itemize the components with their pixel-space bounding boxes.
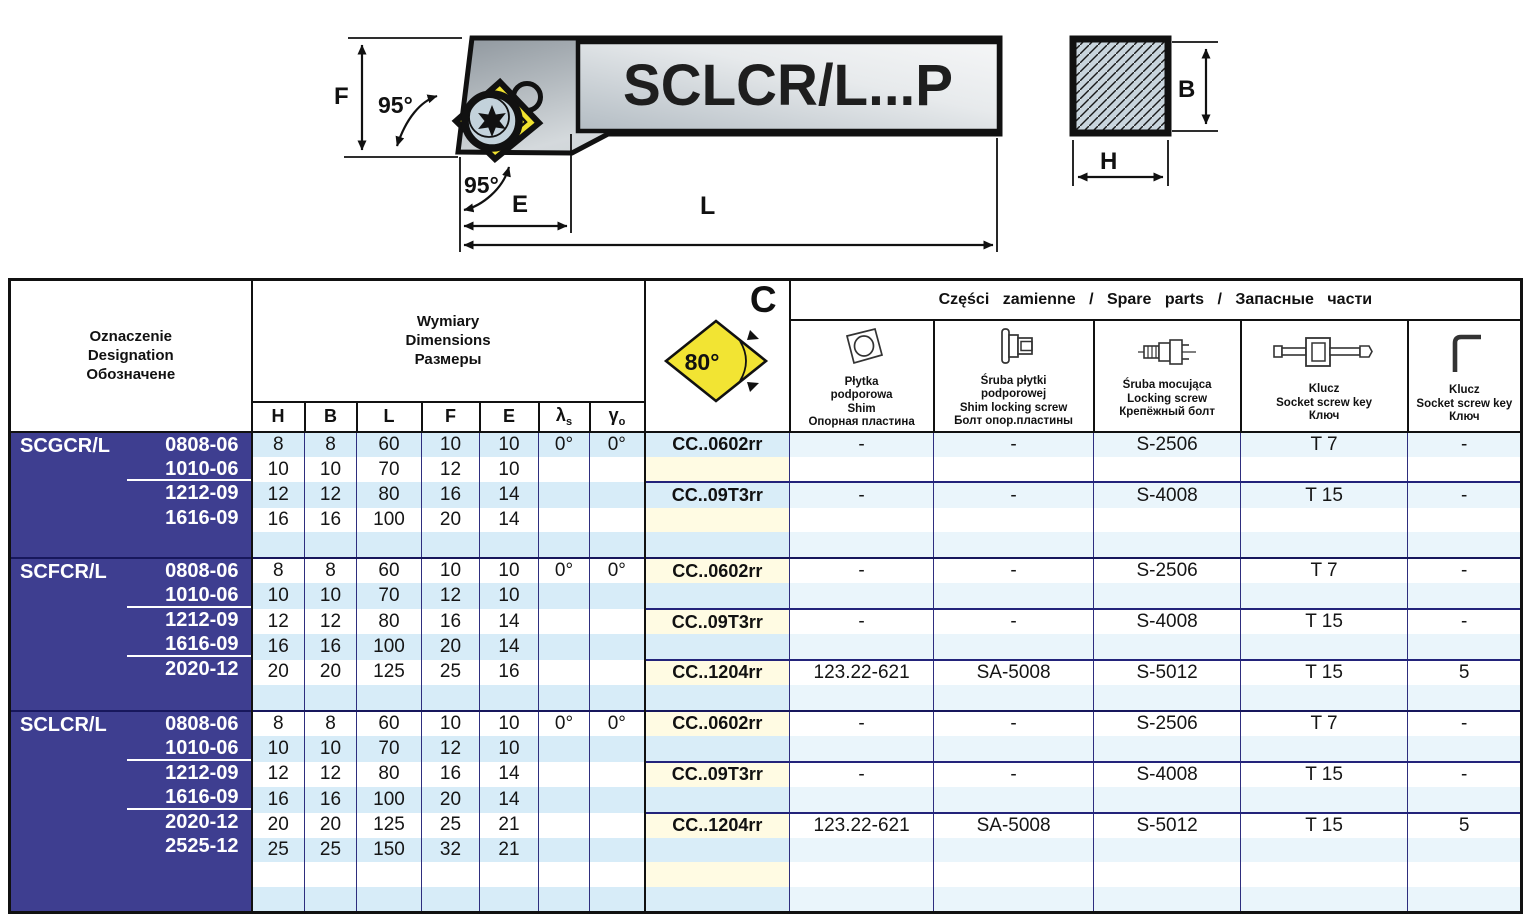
dim-cell: 20 — [252, 660, 305, 685]
spare-part-cell: - — [790, 609, 934, 634]
dim-cell: 16 — [305, 787, 357, 812]
insert-cell — [645, 685, 790, 710]
spare-part-cell: - — [1408, 558, 1522, 583]
spare-column-label-line: Śruba mocująca — [1095, 379, 1240, 393]
dim-cell: 60 — [357, 711, 422, 736]
dim-cell: 25 — [252, 838, 305, 862]
spare-part-cell — [934, 634, 1094, 659]
tool-size: 1616-09 — [127, 506, 251, 530]
tool-size: 1010-06 — [127, 457, 251, 481]
dim-cell: 10 — [305, 457, 357, 482]
dim-cell: 8 — [252, 711, 305, 736]
spare-part-cell — [934, 532, 1094, 557]
dim-cell: 12 — [305, 482, 357, 507]
angle-cell — [539, 583, 590, 608]
spare-part-cell: T 7 — [1241, 711, 1408, 736]
dim-label-E: E — [512, 191, 528, 218]
insert-cell — [645, 457, 790, 482]
dim-cell: 70 — [357, 457, 422, 482]
dim-cell: 14 — [480, 787, 539, 812]
dim-letter: γ — [609, 405, 619, 425]
spare-column-label-line: Locking screw — [1095, 393, 1240, 407]
spare-part-cell — [1408, 634, 1522, 659]
spare-part-cell: - — [1408, 482, 1522, 507]
dim-cell — [305, 532, 357, 557]
dim-cell: 10 — [305, 736, 357, 761]
spare-column-label-line: Ключ — [1409, 411, 1521, 425]
spare-column-label-line: Klucz — [1409, 384, 1521, 398]
spare-part-cell: SA-5008 — [934, 660, 1094, 685]
designation-header-line: Обозначене — [11, 365, 251, 384]
dim-cell: 10 — [422, 711, 480, 736]
spare-column-label-line: Śruba płytki — [935, 375, 1093, 389]
spare-part-cell: T 15 — [1241, 660, 1408, 685]
spare-part-cell: 123.22-621 — [790, 813, 934, 838]
spare-column-label-line: Socket screw key — [1409, 398, 1521, 412]
spare-column-header: Śruba mocującaLocking screwКрепёжный бол… — [1094, 320, 1241, 432]
tool-size: 0808-06 — [127, 433, 251, 457]
angle-cell — [539, 862, 590, 886]
tool-series-name: SCFCR/L — [11, 559, 107, 710]
spare-part-cell — [1094, 685, 1241, 710]
dim-cell: 16 — [305, 508, 357, 532]
designation-cell: SCLCR/L0808-061010-061212-091616-092020-… — [10, 711, 252, 913]
spare-part-cell: T 7 — [1241, 432, 1408, 457]
dim-cell: 16 — [422, 762, 480, 787]
angle-cell: 0° — [539, 558, 590, 583]
spare-part-cell — [790, 508, 934, 532]
dim-cell: 16 — [252, 508, 305, 532]
dim-label-F: F — [334, 83, 349, 110]
angle-cell — [590, 634, 645, 659]
angle-cell — [539, 660, 590, 685]
div-element: SCFCR/L0808-061010-061212-091616-092020-… — [11, 559, 251, 710]
spare-part-cell — [934, 787, 1094, 812]
spare-part-cell — [1094, 583, 1241, 608]
tool-size: 0808-06 — [127, 712, 251, 736]
angle-cell — [590, 762, 645, 787]
spare-part-cell — [1094, 838, 1241, 862]
spare-column-label-line: Крепёжный болт — [1095, 406, 1240, 420]
spare-column-header: KluczSocket screw keyКлюч — [1241, 320, 1408, 432]
insert-cell: CC..0602rr — [645, 711, 790, 736]
size-list: 0808-061010-061212-091616-09 — [127, 433, 251, 557]
dim-label-B: B — [1178, 76, 1195, 103]
dim-cell — [422, 532, 480, 557]
spare-part-cell — [1408, 508, 1522, 532]
dim-cell: 10 — [252, 583, 305, 608]
tool-size: 1212-09 — [127, 481, 251, 505]
spare-part-cell: - — [934, 762, 1094, 787]
insert-cell: CC..09T3rr — [645, 609, 790, 634]
spare-part-cell: T 15 — [1241, 482, 1408, 507]
rect-element — [1018, 338, 1032, 354]
spare-part-cell — [1094, 532, 1241, 557]
rect-element — [1282, 348, 1306, 355]
rect-element — [1002, 329, 1009, 363]
insert-cell — [645, 532, 790, 557]
angle-cell — [590, 457, 645, 482]
dim-cell — [252, 532, 305, 557]
angle-cell — [590, 609, 645, 634]
spare-part-cell: S-4008 — [1094, 482, 1241, 507]
dim-column-letter-F: F — [422, 402, 480, 432]
spare-part-cell — [1241, 634, 1408, 659]
spare-part-cell — [1094, 862, 1241, 886]
dim-cell: 10 — [422, 558, 480, 583]
angle-cell — [539, 787, 590, 812]
dim-cell: 16 — [480, 660, 539, 685]
spare-part-cell — [1094, 634, 1241, 659]
dim-cell: 12 — [422, 457, 480, 482]
spare-part-cell — [934, 862, 1094, 886]
spare-column-label-line: Shim locking screw — [935, 402, 1093, 416]
holder-designation-label: SCLCR/L...P — [623, 53, 953, 118]
angle-cell — [590, 583, 645, 608]
spare-part-cell — [1408, 787, 1522, 812]
dim-cell: 12 — [252, 482, 305, 507]
insert-cell: CC..09T3rr — [645, 762, 790, 787]
dim-cell: 70 — [357, 736, 422, 761]
polygon-element — [1360, 346, 1372, 357]
dim-letter: H — [272, 406, 285, 426]
insert-cell: CC..0602rr — [645, 558, 790, 583]
socket-screw-key-icon — [1242, 329, 1407, 380]
spare-part-cell — [1241, 787, 1408, 812]
spare-column-label-line: podporowej — [935, 388, 1093, 402]
tool-size — [127, 681, 251, 705]
angle-cell — [539, 813, 590, 838]
insert-cell — [645, 862, 790, 886]
angle-cell: 0° — [590, 558, 645, 583]
svg-element — [839, 324, 885, 368]
dim-letter-subscript: o — [619, 416, 626, 428]
dim-cell: 100 — [357, 787, 422, 812]
tool-size: 1616-09 — [127, 632, 251, 656]
spare-part-cell: - — [790, 762, 934, 787]
spare-part-cell: - — [790, 482, 934, 507]
insert-column-header: C80° — [645, 280, 790, 432]
tool-size: 1616-09 — [127, 785, 251, 809]
insert-angle-label: 80° — [684, 349, 719, 375]
insert-cell: CC..1204rr — [645, 813, 790, 838]
dim-cell: 14 — [480, 634, 539, 659]
dim-cell: 25 — [305, 838, 357, 862]
dim-cell: 8 — [305, 558, 357, 583]
spare-part-cell: - — [790, 432, 934, 457]
spare-part-cell — [790, 736, 934, 761]
dim-cell: 21 — [480, 838, 539, 862]
spare-part-cell — [1241, 862, 1408, 886]
dim-cell: 16 — [422, 609, 480, 634]
spare-part-cell — [1408, 862, 1522, 886]
dim-cell: 10 — [480, 711, 539, 736]
spare-part-cell — [790, 634, 934, 659]
dim-cell: 12 — [252, 609, 305, 634]
spare-part-cell — [790, 685, 934, 710]
spare-part-cell — [1408, 583, 1522, 608]
spare-part-cell: - — [790, 711, 934, 736]
tool-size: 1010-06 — [127, 736, 251, 760]
tool-size: 1212-09 — [127, 761, 251, 785]
spare-column-header: PłytkapodporowaShimОпорная пластина — [790, 320, 934, 432]
dim-column-letter-B: B — [305, 402, 357, 432]
dimensions-header-line: Wymiary — [253, 312, 644, 331]
angle-label-95-main: 95° — [378, 92, 413, 118]
dim-letter: F — [445, 406, 456, 426]
dim-cell: 16 — [422, 482, 480, 507]
spare-column-label-line: Ключ — [1242, 410, 1407, 424]
dim-cell: 70 — [357, 583, 422, 608]
insert-cell: CC..0602rr — [645, 432, 790, 457]
spare-part-cell: S-2506 — [1094, 432, 1241, 457]
spare-part-cell: - — [1408, 609, 1522, 634]
dim-cell: 10 — [480, 457, 539, 482]
svg-element — [1272, 329, 1376, 375]
dim-cell: 60 — [357, 558, 422, 583]
spare-part-cell: - — [790, 558, 934, 583]
spare-part-cell — [934, 583, 1094, 608]
insert-cell — [645, 787, 790, 812]
insert-cell — [645, 838, 790, 862]
tool-size: 2525-12 — [127, 834, 251, 858]
dim-cell: 8 — [252, 432, 305, 457]
dim-cell: 14 — [480, 609, 539, 634]
designation-cell: SCFCR/L0808-061010-061212-091616-092020-… — [10, 558, 252, 711]
dim-cell: 10 — [422, 432, 480, 457]
spare-part-cell — [790, 457, 934, 482]
angle-cell — [539, 508, 590, 532]
dim-cell: 12 — [422, 736, 480, 761]
dim-cell: 8 — [252, 558, 305, 583]
path-element — [1455, 337, 1481, 372]
dimensions-header: WymiaryDimensionsРазмеры — [252, 280, 645, 402]
dim-cell: 10 — [480, 432, 539, 457]
table-row: SCLCR/L0808-061010-061212-091616-092020-… — [10, 711, 1522, 736]
spare-part-cell — [934, 508, 1094, 532]
spare-part-cell — [790, 787, 934, 812]
polygon-element — [747, 330, 759, 340]
div-element: SCGCR/L0808-061010-061212-091616-09 — [11, 433, 251, 557]
spare-part-cell: T 15 — [1241, 609, 1408, 634]
spare-part-cell: T 7 — [1241, 558, 1408, 583]
dim-cell: 25 — [422, 660, 480, 685]
spare-part-cell — [1094, 457, 1241, 482]
angle-cell — [590, 787, 645, 812]
dim-letter-subscript: s — [566, 416, 572, 428]
spare-part-cell: SA-5008 — [934, 813, 1094, 838]
dim-cell: 10 — [480, 583, 539, 608]
spare-part-cell: - — [934, 609, 1094, 634]
dim-cell: 10 — [480, 558, 539, 583]
dim-cell: 16 — [252, 787, 305, 812]
shank-section — [1073, 39, 1168, 133]
polygon-element — [747, 382, 759, 392]
rect-element — [1159, 343, 1170, 361]
spare-part-cell: - — [934, 558, 1094, 583]
dim-cell: 12 — [252, 762, 305, 787]
angle-cell — [539, 532, 590, 557]
dim-cell — [305, 685, 357, 710]
angle-cell — [590, 508, 645, 532]
spare-part-cell — [790, 838, 934, 862]
dim-cell — [480, 862, 539, 886]
dim-column-letter-λ: λs — [539, 402, 590, 432]
dim-cell: 150 — [357, 838, 422, 862]
angle-cell: 0° — [539, 432, 590, 457]
angle-cell — [590, 532, 645, 557]
dim-cell: 80 — [357, 762, 422, 787]
spare-parts-title: Części zamienne / Spare parts / Запасные… — [790, 280, 1522, 320]
table-row: SCFCR/L0808-061010-061212-091616-092020-… — [10, 558, 1522, 583]
dim-cell — [252, 862, 305, 886]
spare-part-cell — [1241, 508, 1408, 532]
dim-cell: 14 — [480, 482, 539, 507]
spare-column-label-line: Klucz — [1242, 383, 1407, 397]
spare-part-cell: - — [934, 711, 1094, 736]
spare-part-cell: T 15 — [1241, 813, 1408, 838]
spare-part-cell — [934, 838, 1094, 862]
tr-element: OznaczenieDesignationОбозначенеWymiaryDi… — [10, 280, 1522, 320]
tool-size: 0808-06 — [127, 559, 251, 583]
spare-part-cell — [790, 583, 934, 608]
dim-cell: 20 — [252, 813, 305, 838]
tool-size — [127, 530, 251, 554]
dim-cell: 8 — [305, 432, 357, 457]
spare-part-cell: - — [1408, 711, 1522, 736]
designation-header-line: Designation — [11, 346, 251, 365]
shim-icon — [791, 324, 933, 373]
insert-80deg-icon: 80° — [658, 313, 774, 409]
spare-part-cell — [1094, 508, 1241, 532]
dim-label-H: H — [1100, 148, 1117, 175]
rect-element — [1274, 346, 1282, 357]
spare-part-cell — [1241, 457, 1408, 482]
spare-part-cell: - — [1408, 762, 1522, 787]
tool-holder-diagram: SCLCR/L...P F 95° 95° E L B H — [0, 0, 1528, 278]
dim-cell: 21 — [480, 813, 539, 838]
dim-letter: B — [324, 406, 337, 426]
dim-letter: λ — [556, 405, 566, 425]
dim-cell: 32 — [422, 838, 480, 862]
insert-cell — [645, 508, 790, 532]
dim-cell: 12 — [305, 609, 357, 634]
spare-part-cell: S-5012 — [1094, 813, 1241, 838]
angle-cell — [590, 736, 645, 761]
catalog-table: OznaczenieDesignationОбозначенеWymiaryDi… — [8, 278, 1523, 914]
angle-cell — [539, 609, 590, 634]
dim-cell — [422, 862, 480, 886]
spare-column-header: Śruba płytkipodporowejShim locking screw… — [934, 320, 1094, 432]
spare-part-cell: - — [934, 432, 1094, 457]
dim-cell: 8 — [305, 711, 357, 736]
thead-element: OznaczenieDesignationОбозначенеWymiaryDi… — [10, 280, 1522, 432]
spare-part-cell — [1094, 787, 1241, 812]
designation-cell: SCGCR/L0808-061010-061212-091616-09 — [10, 432, 252, 558]
spare-column-label-line: Shim — [791, 403, 933, 417]
dimensions-header-line: Dimensions — [253, 331, 644, 350]
spare-part-cell: S-5012 — [1094, 660, 1241, 685]
spare-part-cell — [1408, 838, 1522, 862]
dimensions-header-line: Размеры — [253, 350, 644, 369]
spare-part-cell — [1408, 457, 1522, 482]
designation-header: OznaczenieDesignationОбозначене — [10, 280, 252, 432]
angle-cell — [539, 685, 590, 710]
spare-column-label-line: podporowa — [791, 389, 933, 403]
insert-cell: CC..1204rr — [645, 660, 790, 685]
dim-cell — [305, 862, 357, 886]
dim-letter: L — [384, 406, 395, 426]
tool-series-name: SCGCR/L — [11, 433, 110, 557]
dim-column-letter-L: L — [357, 402, 422, 432]
dim-label-L: L — [700, 192, 715, 220]
spare-part-cell — [1241, 736, 1408, 761]
dim-column-letter-E: E — [480, 402, 539, 432]
spare-part-cell — [1094, 736, 1241, 761]
div-element: SCLCR/L0808-061010-061212-091616-092020-… — [11, 712, 251, 912]
spare-part-cell — [1408, 532, 1522, 557]
shim-locking-screw-icon — [935, 325, 1093, 372]
dim-cell — [480, 685, 539, 710]
dim-cell: 14 — [480, 762, 539, 787]
spare-part-cell: 5 — [1408, 660, 1522, 685]
spare-part-cell: 5 — [1408, 813, 1522, 838]
size-list: 0808-061010-061212-091616-092020-122525-… — [127, 712, 251, 912]
angle-cell — [590, 813, 645, 838]
rect-element — [1306, 338, 1330, 366]
dim-cell: 10 — [252, 457, 305, 482]
dim-cell: 125 — [357, 813, 422, 838]
dim-cell — [357, 532, 422, 557]
dim-letter: E — [503, 406, 515, 426]
hex-key-icon — [1409, 328, 1521, 381]
spare-part-cell — [934, 685, 1094, 710]
insert-cell — [645, 634, 790, 659]
angle-cell — [590, 685, 645, 710]
spare-part-cell — [934, 457, 1094, 482]
angle-cell — [539, 634, 590, 659]
dim-column-letter-γ: γo — [590, 402, 645, 432]
dim-cell — [252, 685, 305, 710]
spare-part-cell: 123.22-621 — [790, 660, 934, 685]
dim-cell: 16 — [252, 634, 305, 659]
dim-cell: 20 — [422, 634, 480, 659]
locking-screw-icon — [1095, 333, 1240, 376]
dim-cell — [357, 685, 422, 710]
dim-cell — [357, 862, 422, 886]
spare-part-cell — [1241, 583, 1408, 608]
spare-part-cell — [1408, 736, 1522, 761]
angle-cell — [539, 736, 590, 761]
spare-part-cell — [934, 736, 1094, 761]
dim-cell: 20 — [305, 813, 357, 838]
tbody-element: SCGCR/L0808-061010-061212-091616-0988601… — [10, 432, 1522, 913]
dim-cell — [480, 532, 539, 557]
dim-cell: 80 — [357, 609, 422, 634]
svg-element — [1137, 333, 1197, 371]
dim-cell: 12 — [305, 762, 357, 787]
dim-cell: 100 — [357, 508, 422, 532]
rect-element — [1330, 348, 1360, 355]
size-list: 0808-061010-061212-091616-092020-12 — [127, 559, 251, 710]
tool-size: 1010-06 — [127, 583, 251, 607]
angle-cell — [590, 838, 645, 862]
angle-cell: 0° — [590, 432, 645, 457]
dim-cell: 80 — [357, 482, 422, 507]
spare-column-label-line: Опорная пластина — [791, 416, 933, 430]
dim-cell: 20 — [422, 508, 480, 532]
ellipse-element — [854, 336, 873, 356]
